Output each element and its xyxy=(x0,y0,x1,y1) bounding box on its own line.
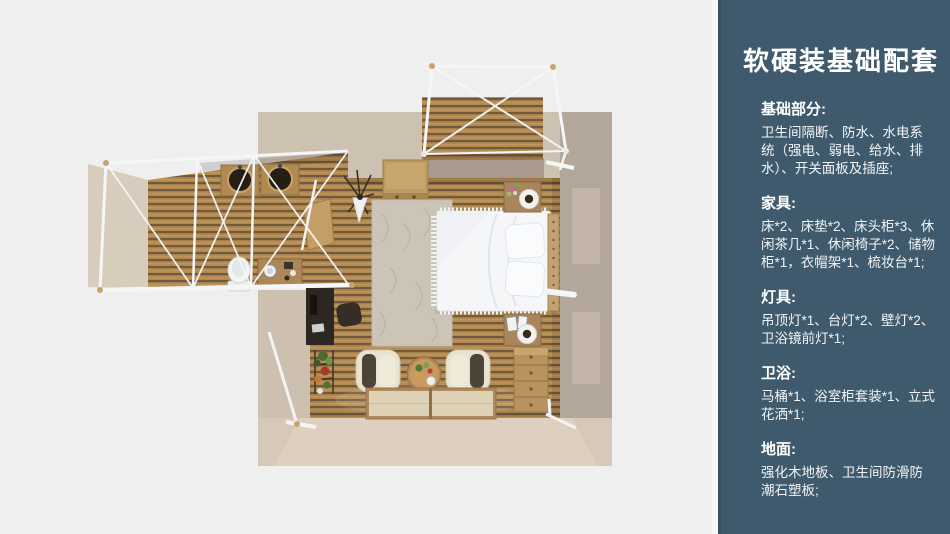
pillow xyxy=(505,261,545,298)
nightstand-top xyxy=(504,182,541,212)
section-body: 卫生间隔断、防水、水电系统（强电、弱电、给水、排水）、开关面板及插座; xyxy=(761,124,936,178)
slide: 软硬装基础配套 基础部分: 卫生间隔断、防水、水电系统（强电、弱电、给水、排水）… xyxy=(0,0,950,534)
bathroom-wall-wedge xyxy=(88,164,148,290)
desk xyxy=(306,288,334,345)
section-heading: 家具: xyxy=(761,194,936,213)
floorplan-area xyxy=(0,0,718,534)
section-heading: 卫浴: xyxy=(761,364,936,383)
deck-shadow xyxy=(422,155,543,160)
nightstand-bottom xyxy=(504,314,541,346)
wardrobe-cabinet xyxy=(383,160,428,202)
section-heading: 灯具: xyxy=(761,288,936,307)
wall-right-panel xyxy=(572,188,600,264)
frame-cap xyxy=(563,148,569,154)
section-heading: 基础部分: xyxy=(761,100,936,119)
section-body: 床*2、床垫*2、床头柜*3、休闲茶几*1、休闲椅子*2、储物柜*1，衣帽架*1… xyxy=(761,218,936,272)
deck-floor xyxy=(422,97,543,159)
section-body: 马桶*1、浴室柜套装*1、立式花洒*1; xyxy=(761,388,936,424)
section-basics: 基础部分: 卫生间隔断、防水、水电系统（强电、弱电、给水、排水）、开关面板及插座… xyxy=(761,100,936,178)
frame-cap xyxy=(349,282,355,288)
frame-cap xyxy=(421,151,427,157)
section-list: 基础部分: 卫生间隔断、防水、水电系统（强电、弱电、给水、排水）、开关面板及插座… xyxy=(761,100,936,500)
section-flooring: 地面: 强化木地板、卫生间防滑防潮石塑板; xyxy=(761,440,936,500)
section-lighting: 灯具: 吊顶灯*1、台灯*2、壁灯*2、卫浴镜前灯*1; xyxy=(761,288,936,348)
bathroom-cabinet xyxy=(258,259,302,287)
floor-mats xyxy=(366,388,496,419)
armchair-right xyxy=(446,350,490,392)
section-heading: 地面: xyxy=(761,440,936,459)
floorplan-render xyxy=(0,0,718,534)
frame-cap xyxy=(550,64,556,70)
coffee-table xyxy=(407,357,441,391)
section-body: 强化木地板、卫生间防滑防潮石塑板; xyxy=(761,464,936,500)
section-furniture: 家具: 床*2、床垫*2、床头柜*3、休闲茶几*1、休闲椅子*2、储物柜*1，衣… xyxy=(761,194,936,272)
wall-left xyxy=(258,290,310,418)
section-bathroom: 卫浴: 马桶*1、浴室柜套装*1、立式花洒*1; xyxy=(761,364,936,424)
wall-bottom-sheen xyxy=(274,418,598,466)
frame-cap xyxy=(103,160,109,166)
frame-cap xyxy=(97,287,103,293)
balcony-doorway xyxy=(424,158,544,178)
headboard xyxy=(548,214,559,311)
section-body: 吊顶灯*1、台灯*2、壁灯*2、卫浴镜前灯*1; xyxy=(761,312,936,348)
sidebar-title: 软硬装基础配套 xyxy=(743,46,936,76)
frame-cap xyxy=(294,421,300,427)
armchair-left xyxy=(356,350,400,392)
wall-right-panel xyxy=(572,312,600,384)
dresser xyxy=(514,348,548,412)
info-sidebar: 软硬装基础配套 基础部分: 卫生间隔断、防水、水电系统（强电、弱电、给水、排水）… xyxy=(718,0,950,534)
bed xyxy=(434,209,559,314)
pillow xyxy=(505,222,546,259)
frame-cap xyxy=(429,63,435,69)
